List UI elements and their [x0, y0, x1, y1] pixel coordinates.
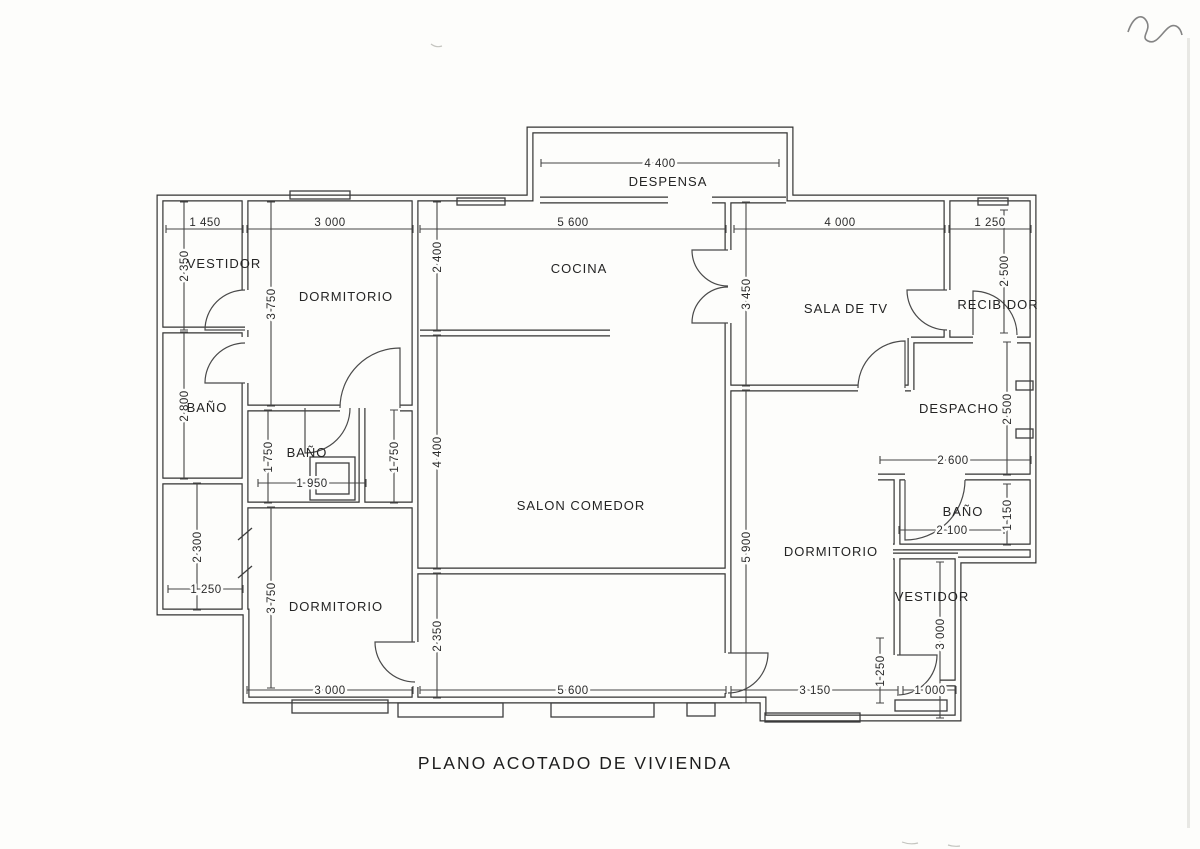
room-label-despensa: DESPENSA [629, 174, 708, 189]
dim-label: 2 300 [192, 531, 204, 562]
dimension-labels-vertical: 2 350 2 800 2 300 3 750 1 750 3 750 1 75… [179, 241, 1014, 686]
dim-label: 1 250 [875, 655, 887, 686]
room-label-bano-right: BAÑO [943, 504, 984, 519]
door-vestidor-top [205, 290, 245, 330]
dim-label: 5 900 [741, 531, 753, 562]
dim-label: 1 250 [974, 217, 1005, 229]
dimension-lines [166, 163, 1031, 718]
dimension-ticks [166, 159, 1031, 718]
dim-label: 1 750 [389, 441, 401, 472]
outer-wall [160, 130, 1033, 718]
dim-label: 4 400 [432, 436, 444, 467]
room-label-dormitorio-bottom: DORMITORIO [289, 599, 383, 614]
plan-title: PLANO ACOTADO DE VIVIENDA [418, 753, 732, 773]
dim-label: 2 100 [936, 525, 967, 537]
double-door-cocina [692, 250, 728, 323]
top-smudge-artifact [431, 44, 442, 47]
dim-label: 1 000 [914, 685, 945, 697]
door-dormitorio-bottom [375, 642, 415, 682]
dim-label: 1 750 [263, 441, 275, 472]
room-label-salon: SALON COMEDOR [517, 498, 646, 513]
dim-label: 1 150 [1002, 499, 1014, 530]
dim-label: 3 750 [266, 582, 278, 613]
dim-label: 2 350 [432, 620, 444, 651]
walls [160, 130, 1033, 718]
room-label-dormitorio-top: DORMITORIO [299, 289, 393, 304]
dim-label: 5 600 [557, 217, 588, 229]
pen-scribble-artifact [1128, 17, 1182, 42]
dim-label: 1 250 [190, 584, 221, 596]
room-label-vestidor-bottom: VESTIDOR [895, 589, 969, 604]
dim-label: 3 000 [314, 685, 345, 697]
dim-label: 3 450 [741, 278, 753, 309]
door-bano-left [205, 343, 245, 383]
bottom-smudge-artifact [902, 842, 960, 846]
dim-label: 3 000 [314, 217, 345, 229]
door-recibidor-sala [907, 290, 947, 330]
dim-label: 2 600 [937, 455, 968, 467]
scanner-edge-shadow [1187, 38, 1190, 828]
room-label-dormitorio-right: DORMITORIO [784, 544, 878, 559]
dim-label: 1 950 [296, 478, 327, 490]
dim-label: 3 150 [799, 685, 830, 697]
dim-label: 1 450 [189, 217, 220, 229]
dim-label: 2 400 [432, 241, 444, 272]
dim-label: 4 400 [644, 158, 675, 170]
room-label-vestidor-top: VESTIDOR [187, 256, 261, 271]
dimension-labels-horizontal: 4 400 1 450 3 000 5 600 4 000 1 250 1 95… [189, 158, 1005, 697]
room-label-bano-left: BAÑO [187, 400, 228, 415]
room-label-sala-tv: SALA DE TV [804, 301, 888, 316]
dim-label: 2 500 [999, 255, 1011, 286]
door-dormitorio-right [728, 653, 768, 693]
room-label-cocina: COCINA [551, 261, 608, 276]
dim-label: 3 000 [935, 618, 947, 649]
dim-label: 5 600 [557, 685, 588, 697]
floor-plan-scan: 4 400 1 450 3 000 5 600 4 000 1 250 1 95… [0, 0, 1200, 849]
door-despacho [858, 341, 905, 388]
door-dormitorio-top [340, 348, 400, 408]
room-label-bano-middle: BAÑO [287, 445, 328, 460]
dim-label: 2 500 [1002, 393, 1014, 424]
dim-label: 3 750 [266, 288, 278, 319]
room-label-recibidor: RECIBIDOR [957, 297, 1038, 312]
dim-label: 4 000 [824, 217, 855, 229]
room-label-despacho: DESPACHO [919, 401, 999, 416]
